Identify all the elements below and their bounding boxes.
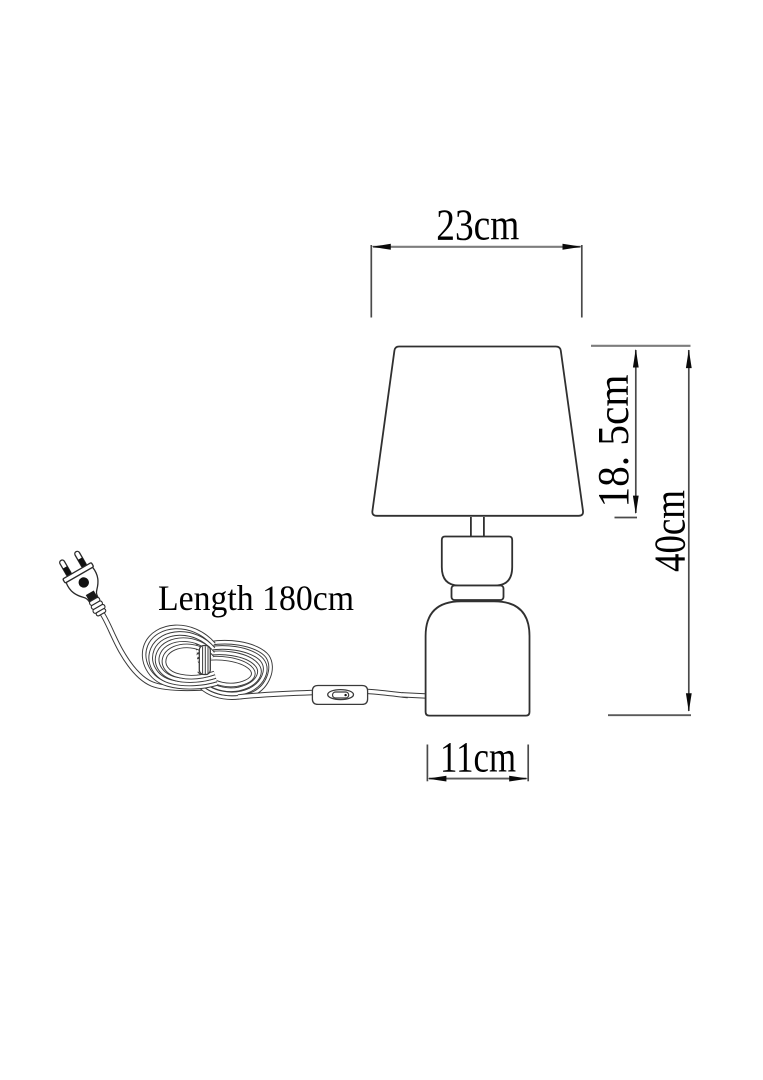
svg-text:23cm: 23cm [436, 201, 519, 250]
svg-text:18. 5cm: 18. 5cm [589, 375, 638, 508]
svg-text:40cm: 40cm [646, 490, 695, 572]
svg-text:Length 180cm: Length 180cm [158, 578, 354, 618]
svg-text:11cm: 11cm [440, 734, 516, 781]
